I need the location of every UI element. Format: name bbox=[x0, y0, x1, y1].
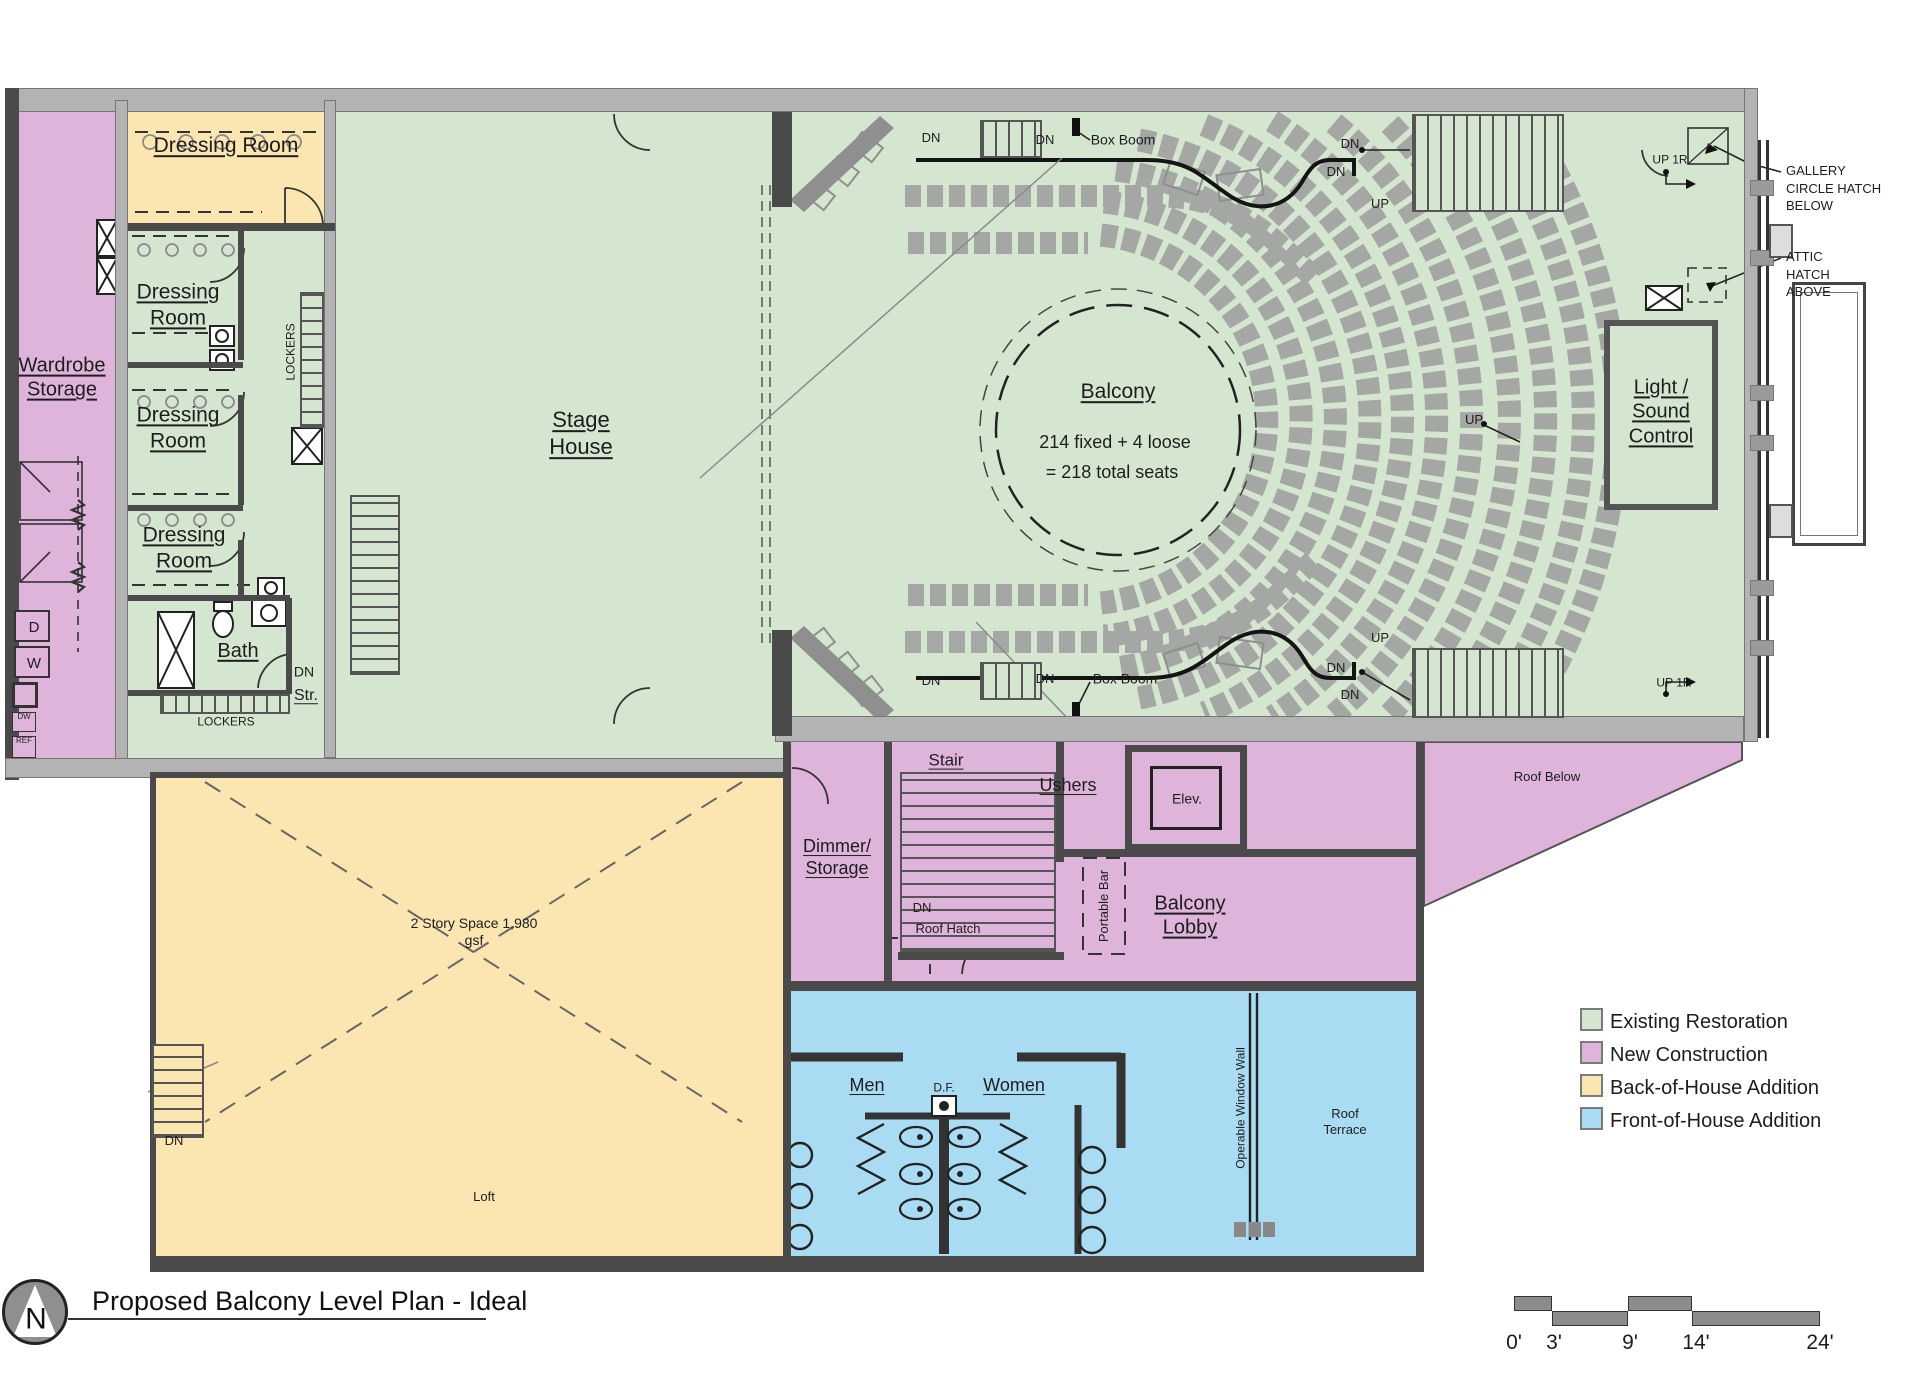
marker-dn: DN bbox=[1036, 132, 1055, 148]
scale-tick-24: 24' bbox=[1806, 1330, 1833, 1356]
two-story-x bbox=[205, 782, 742, 1122]
wall-lobby-blue bbox=[787, 981, 1424, 991]
stair-loft bbox=[152, 1044, 204, 1138]
gallery-circle-dashed bbox=[996, 305, 1240, 555]
stair-house-right-bottom bbox=[1412, 648, 1564, 718]
entry-connector-1 bbox=[1750, 180, 1774, 196]
room-label-women: Women bbox=[983, 1075, 1045, 1097]
page-title: Proposed Balcony Level Plan - Ideal bbox=[92, 1285, 527, 1318]
stair-stage-left bbox=[350, 495, 400, 675]
room-label-window-wall: Operable Window Wall bbox=[1234, 1047, 1249, 1169]
room-label-df: D.F. bbox=[933, 1081, 954, 1096]
dishwasher-label: DW bbox=[17, 712, 30, 721]
wall-proscenium-top bbox=[772, 112, 792, 207]
room-label-bath: Bath bbox=[217, 639, 258, 663]
room-label-balcony-lobby: Balcony Lobby bbox=[1130, 892, 1250, 941]
room-label-roof-terrace: Roof Terrace bbox=[1310, 1106, 1380, 1138]
marker-dn-str: DN bbox=[294, 663, 314, 680]
wall-top bbox=[5, 88, 1758, 112]
dryer-box: D bbox=[14, 610, 50, 642]
marker-dn: DN bbox=[922, 130, 941, 146]
room-label-wardrobe-storage: Wardrobe Storage bbox=[14, 354, 110, 403]
scale-tick-0: 0' bbox=[1506, 1330, 1522, 1356]
entry-connector-4 bbox=[1750, 435, 1774, 451]
room-label-roof-hatch: Roof Hatch bbox=[915, 921, 980, 937]
room-label-str: Str. bbox=[294, 686, 318, 706]
wall-dr3-dr4 bbox=[128, 505, 243, 511]
marker-up: UP bbox=[1371, 630, 1389, 646]
marker-dn: DN bbox=[1341, 136, 1360, 152]
entry-connector-6 bbox=[1750, 640, 1774, 656]
wall-auditorium-south bbox=[775, 716, 1744, 742]
entry-connector-3 bbox=[1750, 385, 1774, 401]
washer-label: W bbox=[27, 655, 41, 673]
title-underline bbox=[68, 1318, 486, 1320]
wall-loft-west bbox=[150, 775, 156, 1262]
marker-up-1r-top: UP 1R bbox=[1652, 153, 1687, 168]
wall-dr-yellow-south bbox=[128, 223, 335, 231]
entry-trapezoid-bottom bbox=[1769, 504, 1793, 538]
wall-pink-east bbox=[1416, 742, 1424, 988]
entry-connector-5 bbox=[1750, 580, 1774, 596]
marker-box-boom-top: Box Boom bbox=[1091, 131, 1156, 148]
floor-plan: D W DW REF Wardrobe Storage Dressing Roo… bbox=[0, 0, 1920, 1379]
scale-tick-14: 14' bbox=[1682, 1330, 1709, 1356]
marker-up-1r-bottom: UP 1R bbox=[1656, 676, 1691, 691]
room-label-men: Men bbox=[849, 1075, 884, 1097]
wall-dr2-dr3 bbox=[128, 362, 243, 368]
proscenium-splay-top bbox=[790, 116, 894, 212]
wall-stairroom-south bbox=[898, 952, 1064, 960]
room-label-ushers: Ushers bbox=[1039, 775, 1096, 797]
proscenium-splay-bottom bbox=[790, 626, 894, 722]
legend-label-existing: Existing Restoration bbox=[1610, 1010, 1788, 1034]
room-label-dressing-4: Dressing Room bbox=[129, 522, 239, 573]
room-label-portable-bar: Portable Bar bbox=[1096, 870, 1112, 942]
wall-dressing-stage bbox=[324, 100, 336, 758]
stair-house-left-top bbox=[980, 120, 1042, 158]
scale-tick-3: 3' bbox=[1546, 1330, 1562, 1356]
marker-dn: DN bbox=[1036, 671, 1055, 687]
gallery-circle-outer-dashed bbox=[980, 289, 1256, 571]
stair-house-left-bottom bbox=[980, 662, 1042, 700]
room-label-lockers-bottom: LOCKERS bbox=[197, 715, 254, 730]
legend-swatch-new bbox=[1580, 1041, 1603, 1064]
room-label-roof-below: Roof Below bbox=[1514, 769, 1580, 785]
annotation-attic-hatch: ATTIC HATCH ABOVE bbox=[1786, 248, 1856, 301]
wall-corridor-2 bbox=[238, 395, 244, 505]
marker-dn: DN bbox=[922, 673, 941, 689]
marquee-inner bbox=[1800, 292, 1858, 536]
room-label-two-story: 2 Story Space 1,980 gsf bbox=[408, 915, 540, 949]
wall-bottom bbox=[150, 1256, 1424, 1272]
wall-corridor-1 bbox=[238, 230, 244, 360]
marker-dn: DN bbox=[1327, 164, 1346, 180]
box-seats bbox=[803, 132, 1263, 706]
room-label-elev: Elev. bbox=[1172, 790, 1202, 807]
scale-block-4 bbox=[1692, 1311, 1820, 1326]
room-label-balcony: Balcony bbox=[1081, 379, 1156, 405]
legend-label-new: New Construction bbox=[1610, 1043, 1768, 1067]
balcony-seat-note-2: = 218 total seats bbox=[997, 462, 1227, 484]
sink-box bbox=[12, 682, 38, 708]
refrigerator-label: REF bbox=[16, 736, 32, 745]
marker-dn: DN bbox=[913, 900, 932, 916]
scale-block-1 bbox=[1514, 1296, 1552, 1311]
wall-proscenium-bottom bbox=[772, 630, 792, 736]
north-letter: N bbox=[25, 1302, 47, 1339]
room-label-stair: Stair bbox=[929, 751, 964, 772]
room-label-dressing-3: Dressing Room bbox=[123, 402, 233, 453]
refrigerator-box: REF bbox=[12, 736, 36, 758]
marker-dn: DN bbox=[1341, 687, 1360, 703]
legend-swatch-foh bbox=[1580, 1107, 1603, 1130]
room-label-stage-house: Stage House bbox=[539, 407, 623, 461]
dishwasher-box: DW bbox=[12, 712, 36, 732]
marker-up: UP bbox=[1371, 196, 1389, 212]
marker-up: UP bbox=[1465, 412, 1483, 428]
wall-loft-east bbox=[783, 742, 791, 1262]
locker-column bbox=[300, 292, 324, 428]
stair-house-right-top bbox=[1412, 114, 1564, 212]
wall-dimmer-stair bbox=[884, 742, 892, 988]
room-label-loft: Loft bbox=[473, 1189, 495, 1205]
legend-swatch-existing bbox=[1580, 1008, 1603, 1031]
locker-row bbox=[160, 694, 290, 714]
room-label-dressing-1: Dressing Room bbox=[106, 133, 346, 159]
wall-blue-east bbox=[1416, 988, 1424, 1262]
scale-block-2 bbox=[1552, 1311, 1628, 1326]
wall-dr4-bath bbox=[128, 595, 290, 601]
annotation-gallery-hatch: GALLERY CIRCLE HATCH BELOW bbox=[1786, 162, 1882, 215]
marker-box-boom-bottom: Box Boom bbox=[1093, 670, 1158, 687]
marker-dn: DN bbox=[165, 1133, 184, 1149]
wall-loft-north bbox=[150, 772, 787, 778]
north-arrow: N bbox=[2, 1279, 68, 1345]
room-label-dressing-2: Dressing Room bbox=[123, 279, 233, 330]
wall-stairroom-east bbox=[1056, 742, 1064, 862]
room-label-dimmer-storage: Dimmer/ Storage bbox=[794, 836, 880, 880]
room-label-lockers-vertical: LOCKERS bbox=[284, 323, 299, 380]
legend-swatch-boh bbox=[1580, 1074, 1603, 1097]
washer-box: W bbox=[14, 646, 50, 678]
dryer-label: D bbox=[29, 619, 40, 637]
balcony-seat-note-1: 214 fixed + 4 loose bbox=[1000, 432, 1230, 454]
scale-tick-9: 9' bbox=[1622, 1330, 1638, 1356]
wall-bath-east bbox=[286, 598, 292, 694]
marker-dn: DN bbox=[1327, 660, 1346, 676]
room-label-light-sound: Light / Sound Control bbox=[1613, 375, 1709, 448]
scale-block-3 bbox=[1628, 1296, 1692, 1311]
legend-label-foh: Front-of-House Addition bbox=[1610, 1109, 1821, 1133]
legend-label-boh: Back-of-House Addition bbox=[1610, 1076, 1819, 1100]
